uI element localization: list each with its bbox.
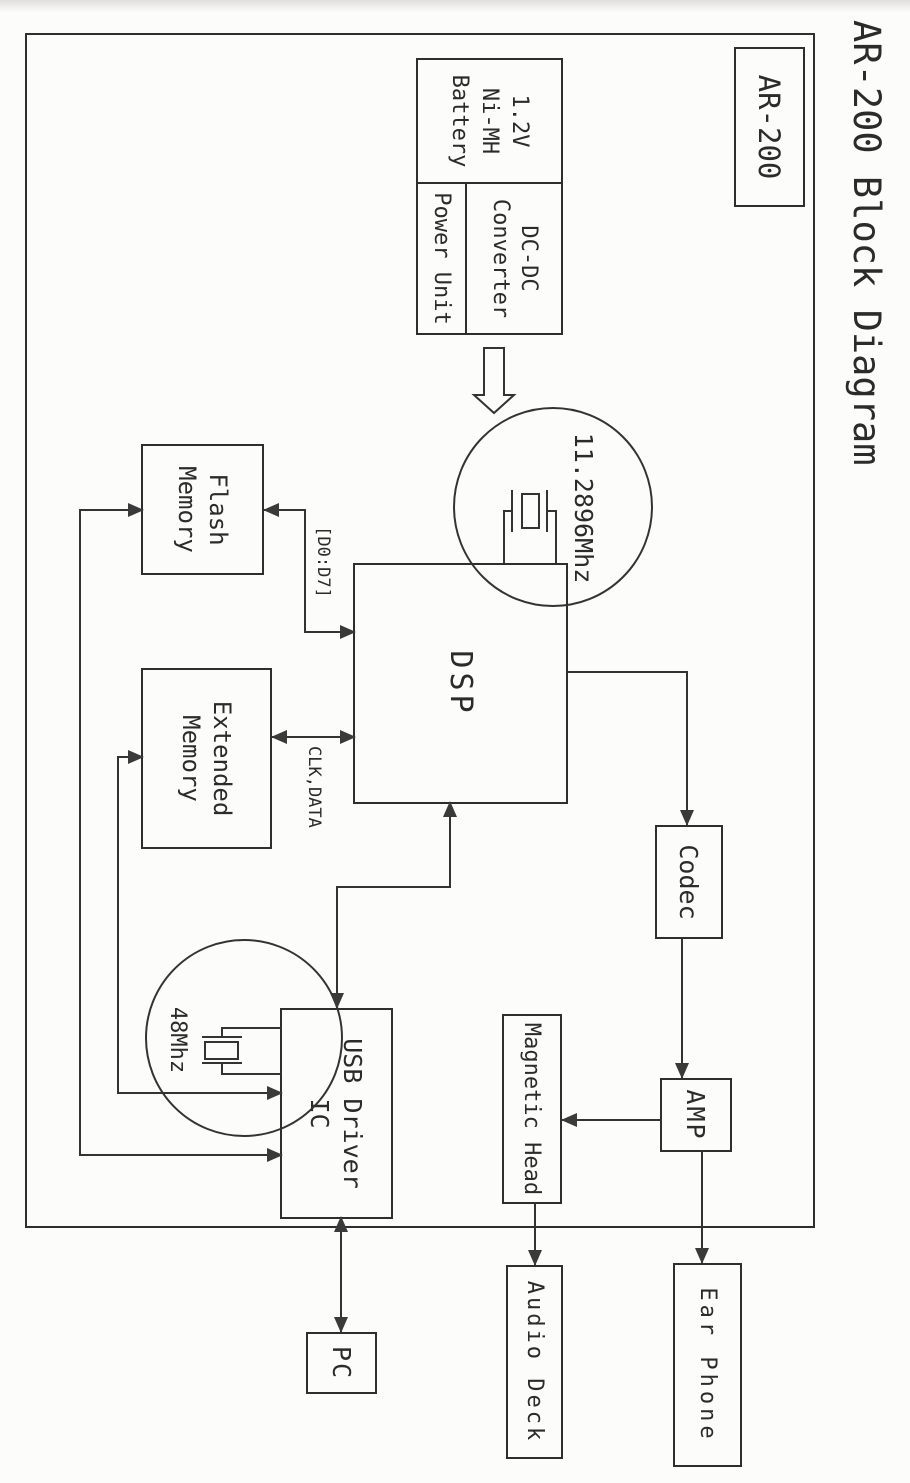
block-power-unit: Power Unit — [416, 182, 467, 335]
block-codec: Codec — [655, 825, 723, 939]
block-dcdc-converter: DC-DC Converter — [465, 182, 563, 335]
diagram-sheet: AR-200 Block Diagram AR-200 1.2V Ni-MH B… — [0, 0, 910, 1483]
block-ear-phone: Ear Phone — [673, 1263, 742, 1467]
block-battery: 1.2V Ni-MH Battery — [416, 58, 563, 184]
scan-artifact-edge — [0, 0, 910, 12]
data-bus-label: [D0:D7] — [313, 518, 333, 606]
model-badge: AR-200 — [734, 47, 805, 207]
clk-data-label: CLK,DATA — [304, 746, 324, 828]
block-pc: PC — [306, 1332, 377, 1394]
block-audio-deck: Audio Deck — [506, 1265, 563, 1459]
block-usb-driver-ic: USB Driver IC — [280, 1008, 393, 1219]
block-amp: AMP — [660, 1078, 732, 1152]
usb-crystal-frequency-label: 48Mhz — [165, 998, 190, 1082]
block-magnetic-head: Magnetic Head — [502, 1014, 562, 1204]
scanned-page: AR-200 Block Diagram AR-200 1.2V Ni-MH B… — [0, 0, 910, 1483]
block-dsp: DSP — [353, 563, 568, 804]
block-extended-memory: Extended Memory — [141, 668, 272, 849]
page-title: AR-200 Block Diagram — [845, 20, 888, 466]
main-crystal-frequency-label: 11.2896Mhz — [569, 413, 598, 603]
block-flash-memory: Flash Memory — [141, 444, 264, 575]
